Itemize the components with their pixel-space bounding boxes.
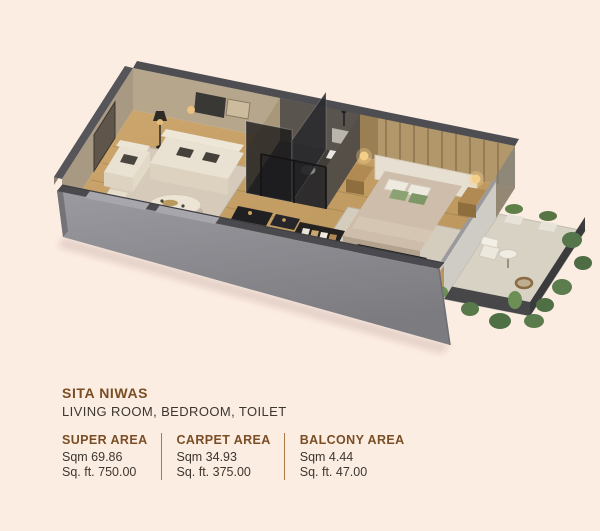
carpet-area-sqft: Sq. ft. 375.00 bbox=[177, 465, 271, 480]
carpet-area-label: CARPET AREA bbox=[177, 433, 271, 447]
wall-art-frame bbox=[226, 99, 250, 119]
plant bbox=[539, 211, 557, 221]
plant bbox=[505, 204, 523, 214]
wicker-chair bbox=[516, 278, 532, 288]
balcony-table bbox=[499, 250, 517, 259]
balcony-area-sqm: Sqm 4.44 bbox=[300, 450, 405, 465]
super-area-sqft: Sq. ft. 750.00 bbox=[62, 465, 148, 480]
unit-title: SITA NIWAS bbox=[62, 385, 405, 401]
page: SITA NIWAS LIVING ROOM, BEDROOM, TOILET … bbox=[0, 0, 600, 531]
super-area-label: SUPER AREA bbox=[62, 433, 148, 447]
super-area-column: SUPER AREA Sqm 69.86 Sq. ft. 750.00 bbox=[62, 433, 162, 480]
balcony-area-sqft: Sq. ft. 47.00 bbox=[300, 465, 405, 480]
decor-item bbox=[160, 199, 163, 202]
balcony-area-column: BALCONY AREA Sqm 4.44 Sq. ft. 47.00 bbox=[300, 433, 405, 480]
carpet-area-column: CARPET AREA Sqm 34.93 Sq. ft. 375.00 bbox=[177, 433, 285, 480]
gold-decor bbox=[248, 211, 252, 215]
floor-lamp-glow bbox=[157, 119, 163, 125]
details-block: SITA NIWAS LIVING ROOM, BEDROOM, TOILET … bbox=[62, 385, 405, 480]
coffee-table-tray bbox=[162, 200, 178, 206]
decor-item bbox=[181, 204, 184, 207]
lamp-glow bbox=[472, 175, 481, 184]
table-lamp-glow bbox=[187, 106, 195, 114]
carpet-area-sqm: Sqm 34.93 bbox=[177, 450, 271, 465]
area-specs: SUPER AREA Sqm 69.86 Sq. ft. 750.00 CARP… bbox=[62, 433, 405, 480]
lamp-glow bbox=[360, 152, 369, 161]
gold-decor bbox=[282, 218, 286, 222]
balcony-area-label: BALCONY AREA bbox=[300, 433, 405, 447]
unit-rooms: LIVING ROOM, BEDROOM, TOILET bbox=[62, 404, 405, 419]
super-area-sqm: Sqm 69.86 bbox=[62, 450, 148, 465]
